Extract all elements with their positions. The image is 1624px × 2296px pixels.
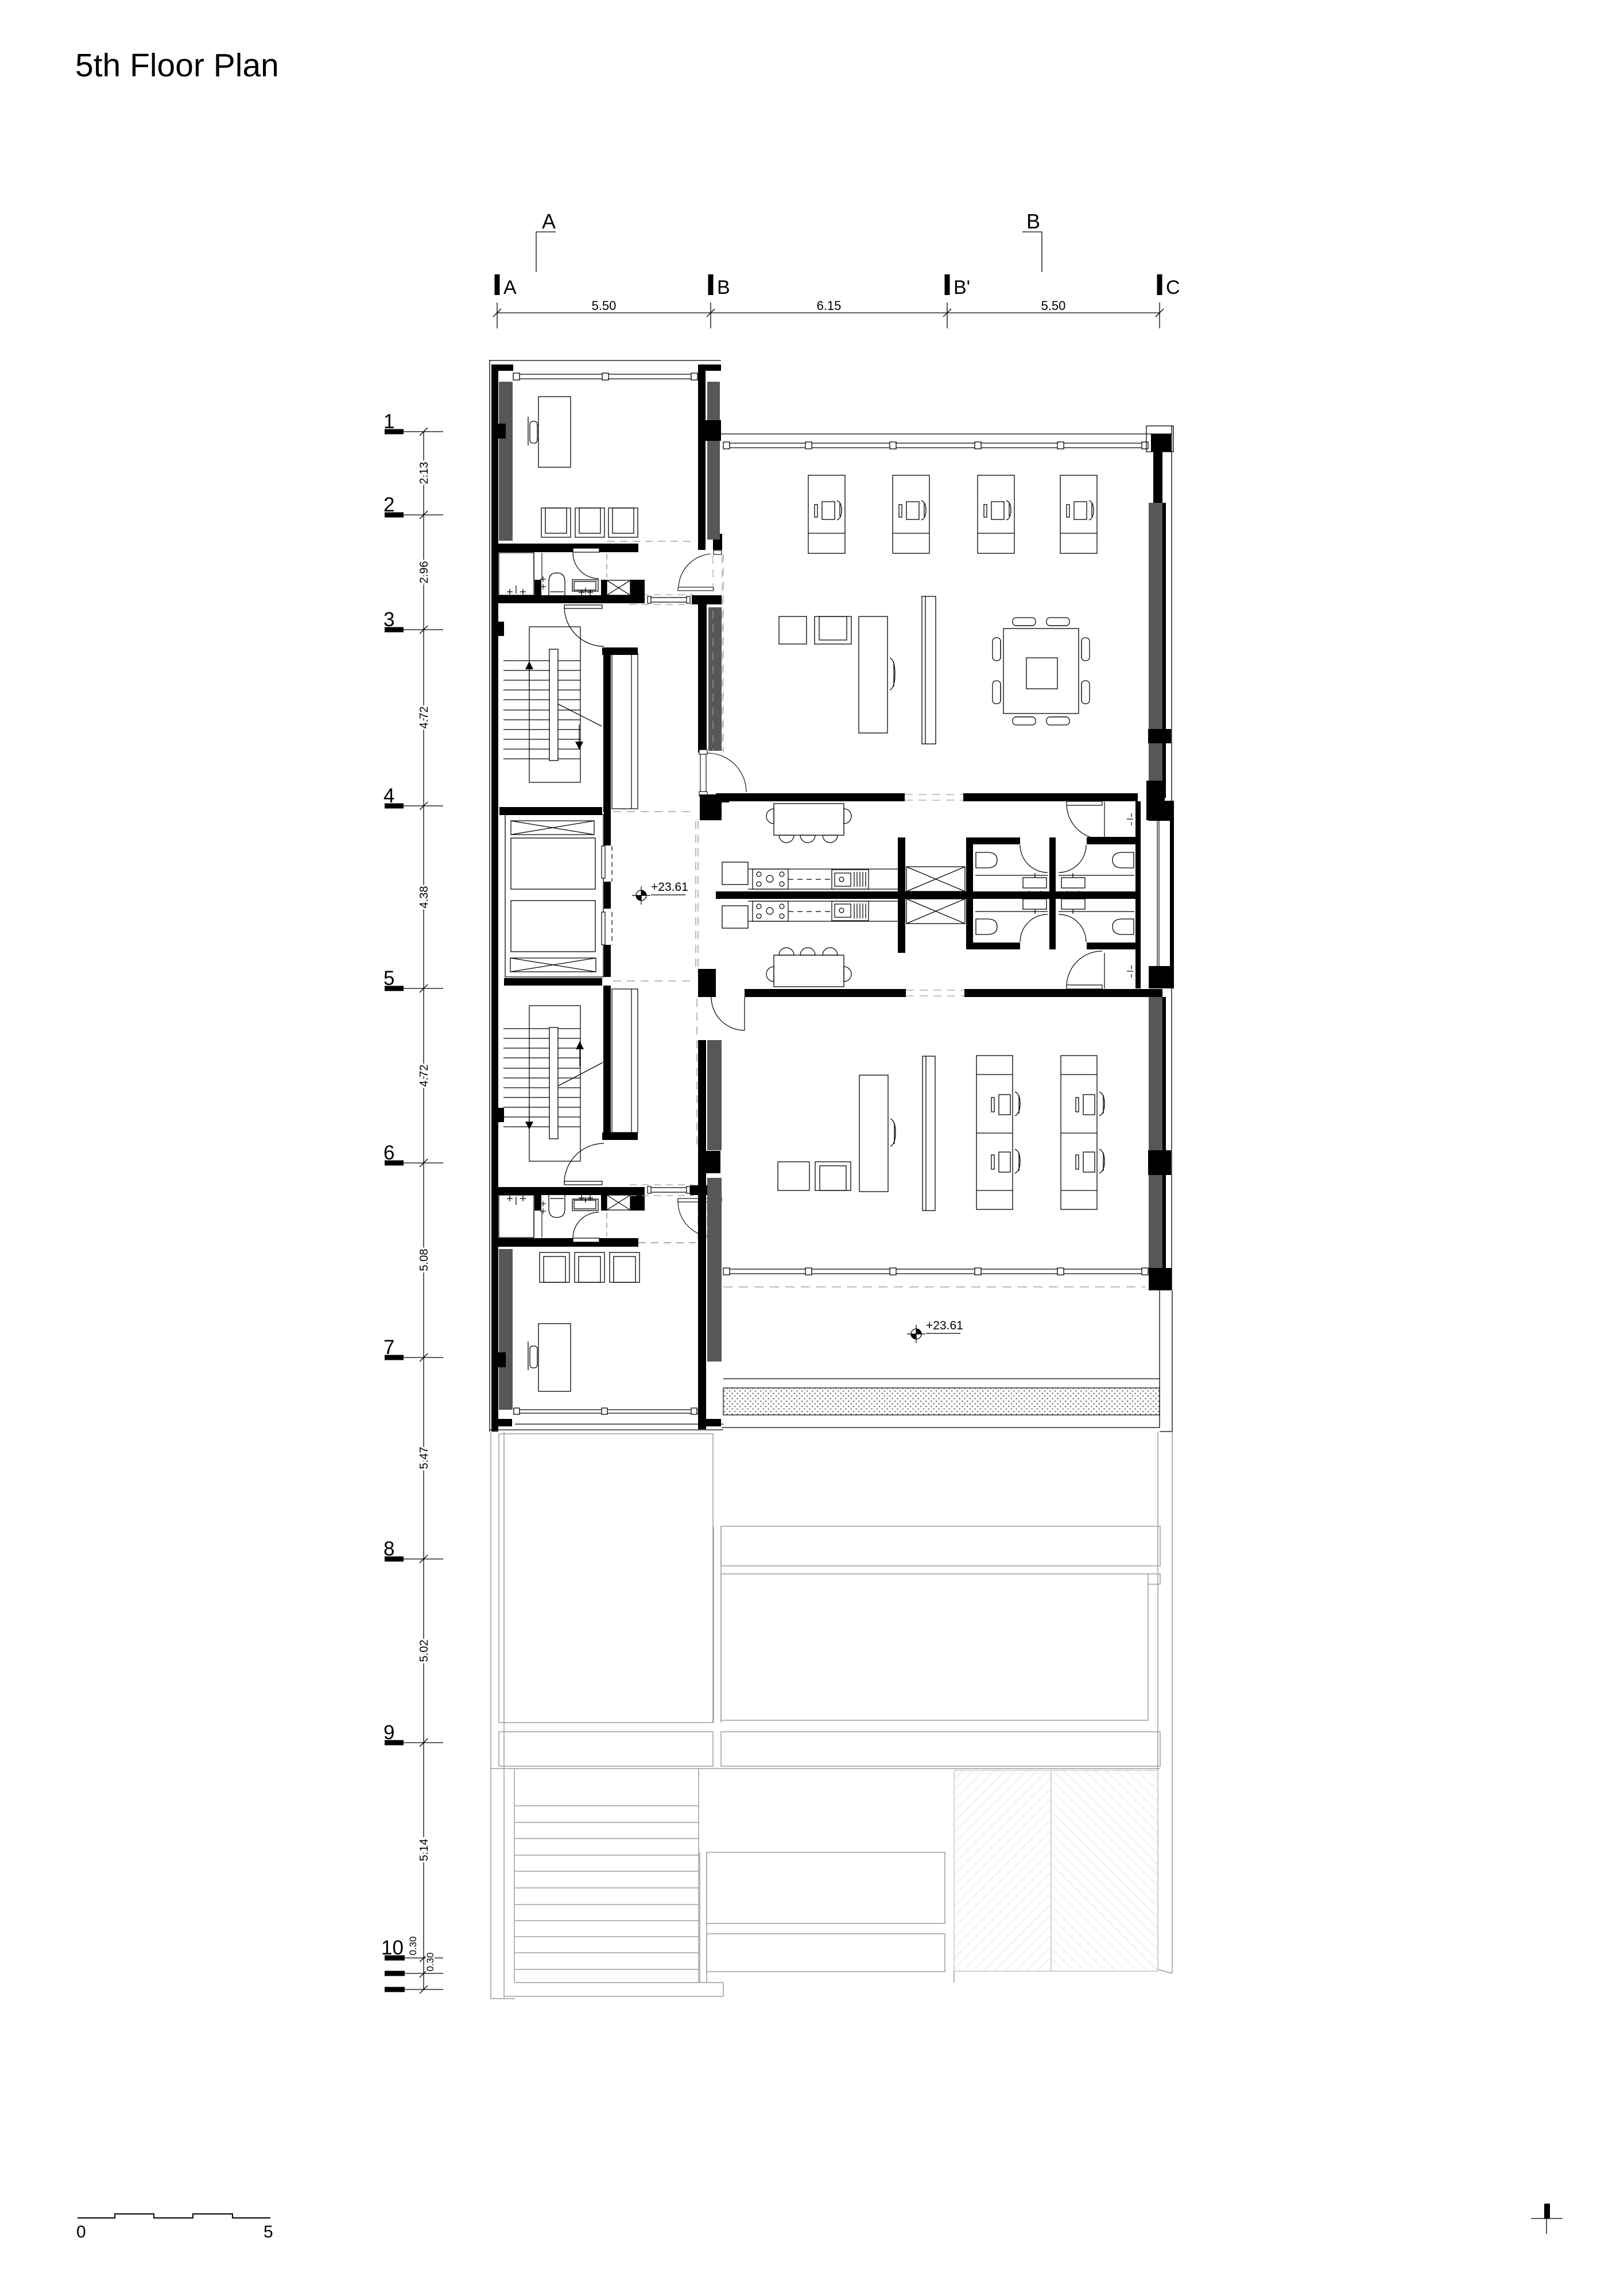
svg-text:6.15: 6.15 bbox=[817, 298, 842, 313]
svg-text:A: A bbox=[542, 210, 556, 233]
svg-text:4.72: 4.72 bbox=[418, 707, 431, 729]
svg-text:+23.61: +23.61 bbox=[651, 881, 688, 894]
svg-text:+23.61: +23.61 bbox=[926, 1319, 963, 1332]
svg-text:2: 2 bbox=[383, 494, 394, 516]
svg-text:6: 6 bbox=[383, 1142, 394, 1164]
svg-text:5.50: 5.50 bbox=[1041, 298, 1066, 313]
svg-text:8: 8 bbox=[383, 1538, 394, 1560]
svg-text:B: B bbox=[717, 277, 730, 298]
svg-text:4.38: 4.38 bbox=[418, 886, 431, 909]
svg-text:4: 4 bbox=[383, 785, 394, 807]
svg-text:5: 5 bbox=[263, 2223, 273, 2241]
svg-text:0.30: 0.30 bbox=[425, 1952, 436, 1971]
svg-text:1: 1 bbox=[383, 410, 394, 433]
svg-text:2.13: 2.13 bbox=[418, 462, 431, 484]
svg-text:5th Floor Plan: 5th Floor Plan bbox=[75, 47, 279, 84]
svg-text:0: 0 bbox=[76, 2223, 86, 2241]
svg-text:C: C bbox=[1166, 277, 1180, 298]
svg-text:3: 3 bbox=[383, 608, 394, 631]
svg-text:0.30: 0.30 bbox=[408, 1936, 418, 1955]
svg-text:2.96: 2.96 bbox=[418, 561, 431, 584]
svg-text:5.14: 5.14 bbox=[418, 1839, 431, 1861]
svg-text:5: 5 bbox=[383, 967, 394, 990]
svg-text:7: 7 bbox=[383, 1336, 394, 1359]
svg-text:5.08: 5.08 bbox=[418, 1249, 431, 1271]
svg-text:10: 10 bbox=[381, 1937, 404, 1959]
svg-text:B: B bbox=[1026, 210, 1040, 233]
svg-text:B': B' bbox=[954, 277, 970, 298]
svg-text:4.72: 4.72 bbox=[418, 1065, 431, 1087]
svg-text:5.50: 5.50 bbox=[592, 298, 617, 313]
svg-text:5.47: 5.47 bbox=[418, 1447, 431, 1469]
svg-text:A: A bbox=[503, 277, 517, 298]
svg-text:9: 9 bbox=[383, 1721, 394, 1744]
svg-text:5.02: 5.02 bbox=[418, 1640, 431, 1662]
